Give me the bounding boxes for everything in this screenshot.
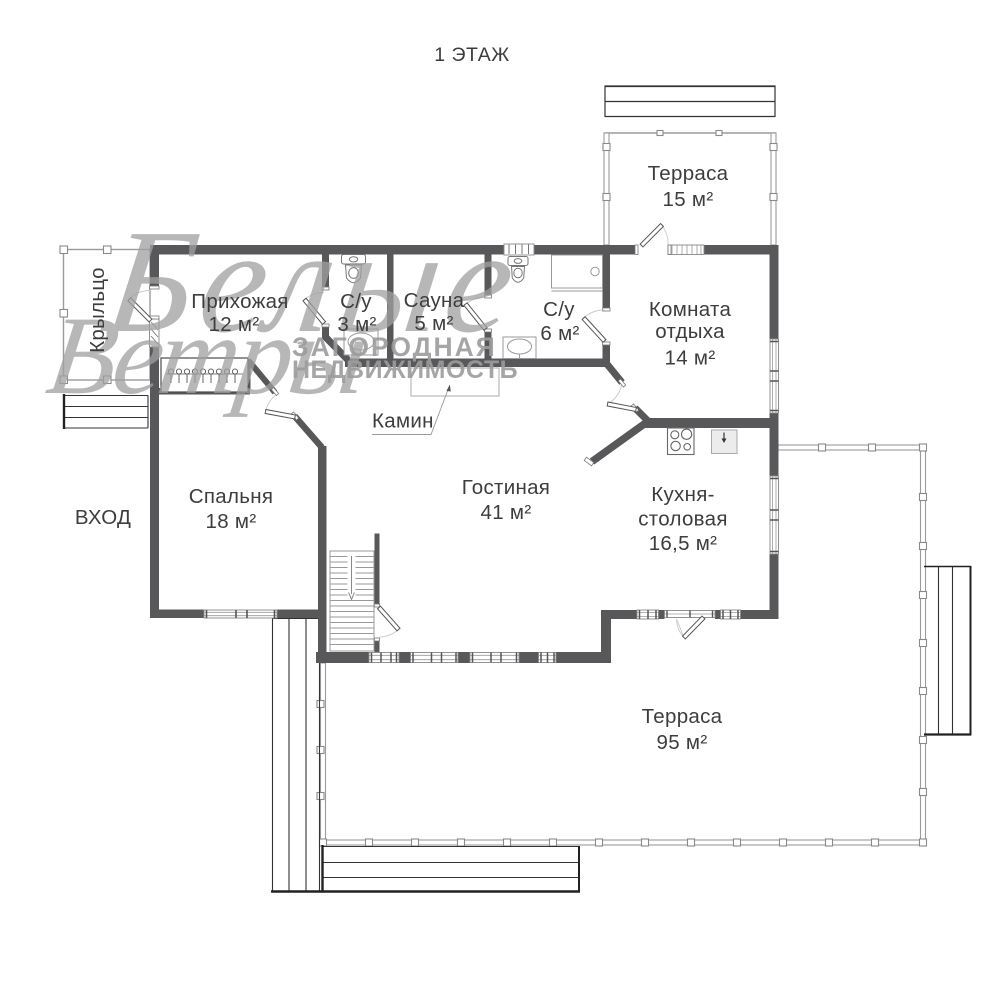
- svg-text:Крыльцо: Крыльцо: [86, 267, 109, 353]
- svg-text:Терраса: Терраса: [642, 705, 723, 728]
- svg-text:Сауна: Сауна: [404, 289, 465, 312]
- svg-text:Камин: Камин: [372, 410, 434, 433]
- svg-text:ВХОД: ВХОД: [75, 506, 131, 529]
- svg-text:Спальня: Спальня: [189, 485, 273, 508]
- svg-text:Комната: Комната: [649, 298, 732, 321]
- svg-text:Кухня-: Кухня-: [651, 483, 715, 506]
- svg-text:16,5 м²: 16,5 м²: [649, 532, 718, 555]
- svg-text:1 ЭТАЖ: 1 ЭТАЖ: [434, 44, 510, 66]
- svg-text:Гостиная: Гостиная: [462, 476, 550, 499]
- svg-text:18 м²: 18 м²: [206, 510, 257, 533]
- svg-text:5 м²: 5 м²: [414, 312, 453, 335]
- svg-text:НЕДВИЖИМОСТЬ: НЕДВИЖИМОСТЬ: [292, 356, 518, 384]
- svg-text:столовая: столовая: [638, 508, 728, 531]
- svg-text:Терраса: Терраса: [648, 162, 729, 185]
- svg-text:3 м²: 3 м²: [337, 313, 376, 336]
- svg-text:С/у: С/у: [543, 298, 575, 321]
- svg-text:15 м²: 15 м²: [663, 188, 714, 211]
- svg-text:41 м²: 41 м²: [481, 501, 532, 524]
- svg-text:95 м²: 95 м²: [657, 731, 708, 754]
- svg-text:С/у: С/у: [340, 290, 372, 313]
- svg-text:14 м²: 14 м²: [665, 347, 716, 370]
- svg-text:6 м²: 6 м²: [540, 322, 579, 345]
- svg-text:отдыха: отдыха: [655, 320, 725, 343]
- svg-text:Прихожая: Прихожая: [191, 290, 288, 313]
- svg-text:12 м²: 12 м²: [209, 313, 260, 336]
